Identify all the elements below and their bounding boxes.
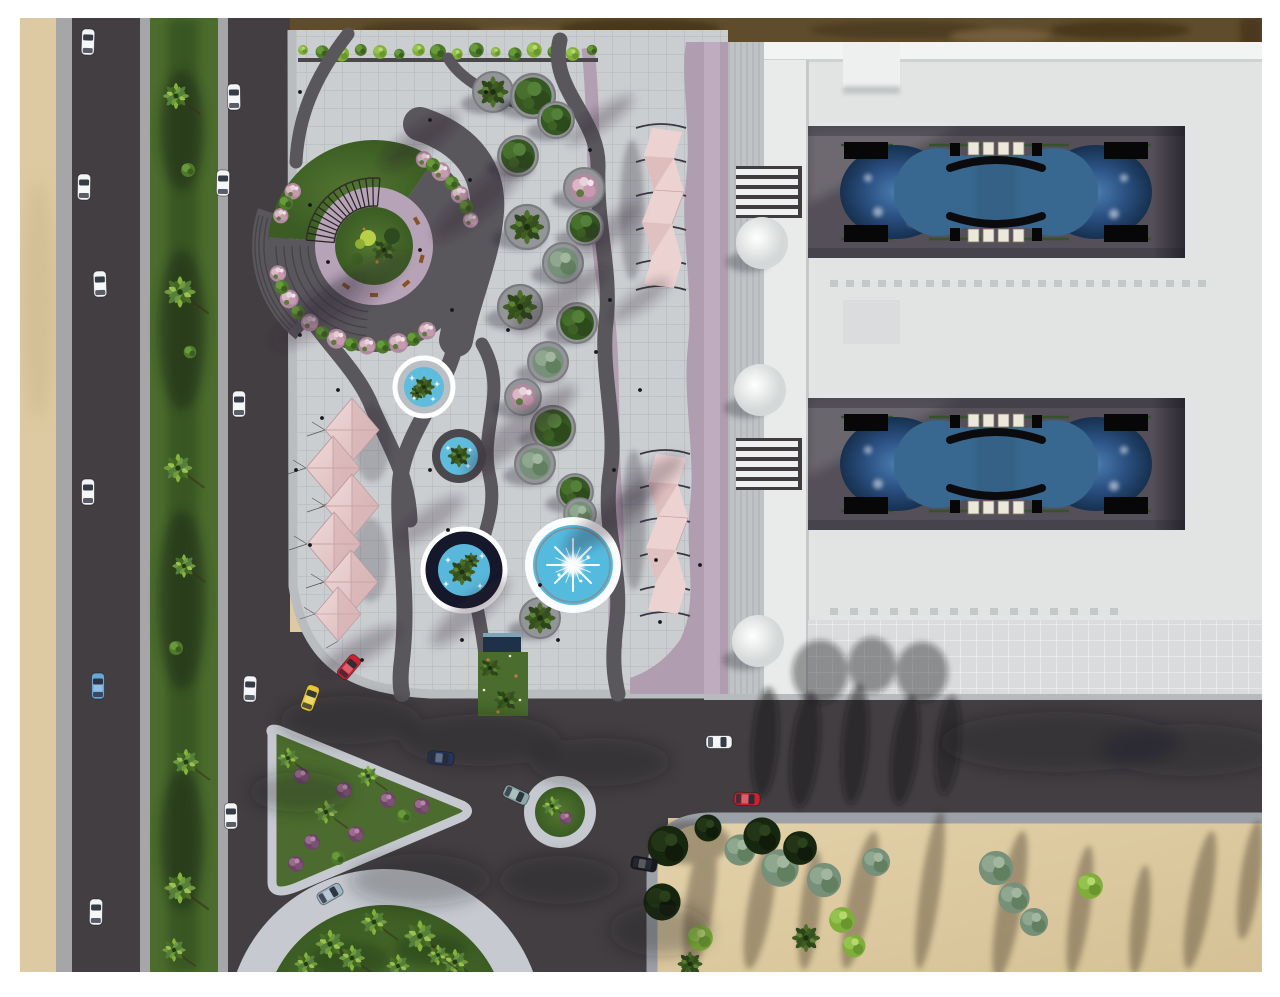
hedge-shrub — [587, 45, 598, 56]
roof-step — [843, 42, 900, 88]
bright-tree — [843, 935, 866, 958]
palmD-tree — [792, 924, 820, 952]
dark-tree — [694, 814, 721, 841]
car — [93, 271, 107, 297]
hedge-shrub — [298, 45, 308, 55]
hedge-shrub — [394, 49, 405, 60]
car — [82, 479, 95, 505]
residential-building — [704, 42, 1262, 700]
person-dot — [588, 148, 592, 152]
fountain-small-north — [395, 358, 453, 416]
person-dot — [460, 638, 464, 642]
person-dot — [294, 468, 298, 472]
person-dot — [450, 308, 454, 312]
courtyard-south — [808, 398, 1185, 530]
car — [734, 792, 760, 806]
purple-flower-shrub — [414, 798, 430, 814]
water-channel-and-bed — [478, 633, 528, 716]
purple-flower-shrub — [380, 792, 396, 808]
hedge-shrub — [527, 42, 542, 57]
hedge-shrub — [469, 43, 484, 58]
person-dot — [506, 328, 510, 332]
dark-palm-tree — [494, 688, 518, 712]
sage-tree — [1020, 908, 1048, 936]
circle-traffic-island — [524, 776, 596, 848]
car — [224, 803, 237, 829]
person-dot — [698, 563, 702, 567]
person-dot — [308, 543, 312, 547]
hedge-shrub — [566, 47, 580, 61]
person-dot — [336, 388, 340, 392]
car — [233, 391, 246, 417]
hedge-shrub — [355, 44, 367, 56]
shrub-tree — [184, 346, 197, 359]
person-dot — [612, 468, 616, 472]
person-dot — [320, 416, 324, 420]
purple-flower-shrub — [288, 856, 304, 872]
building-south-curb — [704, 694, 1262, 700]
car — [427, 750, 454, 765]
shrub — [331, 851, 345, 865]
purple-flower-shrub — [348, 826, 364, 842]
car — [92, 673, 105, 699]
hedge-shrub — [491, 47, 501, 57]
person-dot — [468, 178, 472, 182]
bright-tree — [829, 907, 855, 933]
hedge-shrub — [508, 47, 521, 60]
dark-tree — [743, 817, 780, 854]
person-dot — [326, 260, 330, 264]
courtyard-north — [808, 126, 1185, 258]
hedge-shrub — [373, 45, 387, 59]
car — [89, 899, 102, 925]
car — [81, 29, 95, 55]
person-dot — [658, 620, 662, 624]
car — [706, 736, 732, 749]
person-dot — [538, 583, 542, 587]
landscaped-median — [150, 18, 218, 972]
hedge-shrub — [412, 44, 425, 57]
purple-flower-shrub — [560, 812, 573, 825]
person-dot — [418, 248, 422, 252]
public-plaza — [252, 30, 728, 716]
shrub-tree — [181, 163, 195, 177]
person-dot — [654, 558, 658, 562]
car — [227, 84, 240, 110]
shrub — [397, 809, 411, 823]
dark-tree — [783, 831, 817, 865]
person-dot — [484, 90, 488, 94]
facade-fins-south — [736, 438, 802, 490]
sage-tree — [862, 848, 890, 876]
sage-tree — [998, 882, 1029, 913]
person-dot — [308, 203, 312, 207]
person-dot — [638, 388, 642, 392]
shrub-tree — [169, 641, 183, 655]
person-dot — [298, 90, 302, 94]
sage-tree — [979, 851, 1013, 885]
person-dot — [556, 638, 560, 642]
person-dot — [608, 298, 612, 302]
car — [243, 676, 257, 702]
person-dot — [594, 350, 598, 354]
person-dot — [428, 468, 432, 472]
site-plan-rendering — [0, 0, 1280, 997]
car — [77, 174, 90, 200]
car — [216, 170, 229, 196]
person-dot — [446, 528, 450, 532]
purple-flower-shrub — [304, 834, 320, 850]
bright-tree — [1077, 873, 1103, 899]
southeast-sand-lot — [643, 809, 1268, 981]
facade-fins-north — [736, 166, 802, 218]
sage-tree — [807, 863, 841, 897]
rendering-canvas — [0, 0, 1280, 997]
dark-palm-tree — [479, 657, 501, 679]
